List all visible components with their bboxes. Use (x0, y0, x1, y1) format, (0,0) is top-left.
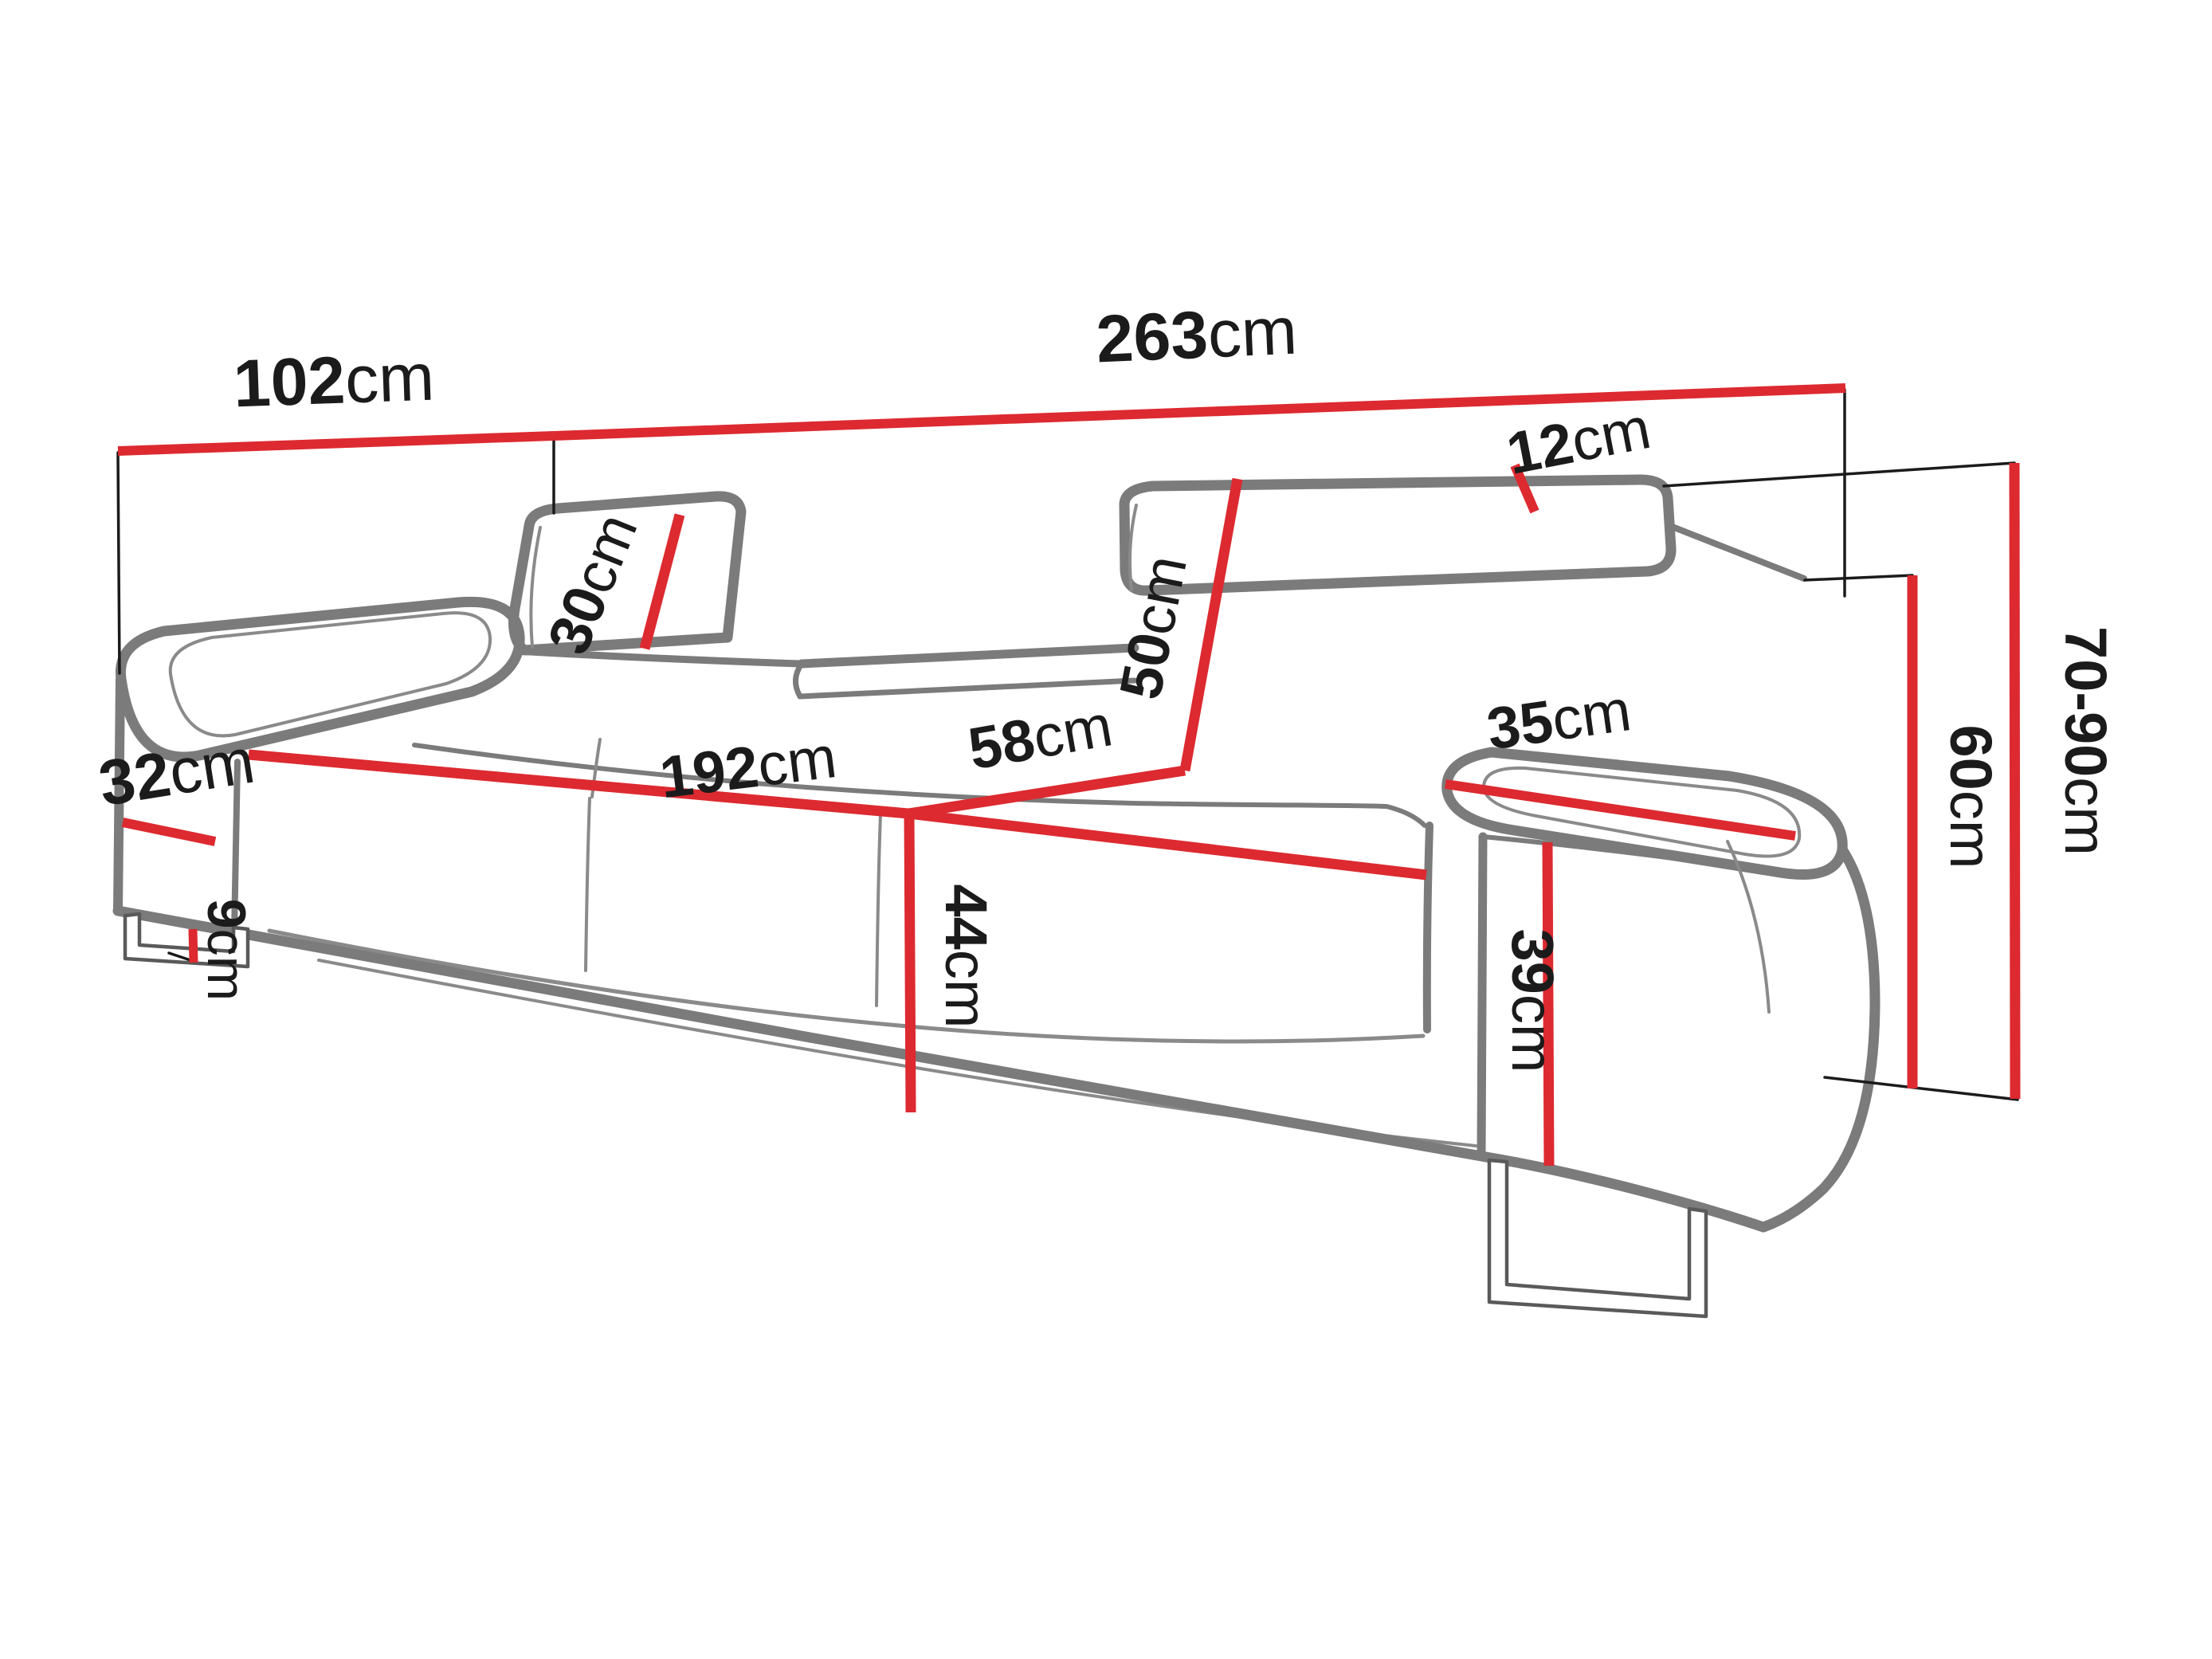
seat-front-divider-right (877, 814, 880, 1006)
dim-label-total-height: 70-90cm (2053, 626, 2119, 856)
backrest-top-left (516, 651, 800, 664)
backrest-top-right (1670, 526, 1804, 578)
dim-label-armrest-height: 60cm (1938, 725, 2004, 869)
dim-line-102 (118, 436, 554, 451)
ref-armrest-height (1805, 575, 1912, 580)
ref-top-height (1664, 463, 2014, 486)
dim-label-width-overall: 263cm (1095, 293, 1299, 377)
sofa-dimension-diagram: 102cm 263cm 30cm 50cm 12cm 32cm 192cm 58… (0, 0, 2212, 1659)
dim-line-30 (645, 515, 680, 649)
seat-cushion-bottom-seam (269, 931, 1423, 1041)
ref-left-drop (118, 453, 120, 673)
headrest-support-bar-cap (795, 664, 802, 696)
right-armrest-front-top-edge (1483, 837, 1775, 872)
dim-line-seat-to-arm (908, 814, 1426, 875)
headrest-support-bar-top (802, 648, 1135, 664)
seat-front-divider-left (586, 798, 590, 971)
dim-line-50 (1185, 479, 1237, 771)
diagram-canvas: 102cm 263cm 30cm 50cm 12cm 32cm 192cm 58… (0, 0, 2212, 1659)
dim-label-seat-height: 44cm (933, 884, 999, 1029)
dim-line-70-90 (2014, 463, 2015, 1099)
right-headrest (1124, 480, 1671, 590)
right-armrest-front-left-edge (1481, 837, 1483, 1153)
dim-label-depth-overall: 102cm (232, 339, 435, 422)
dim-line-9-tick (193, 929, 194, 963)
dim-label-armrest-width-top: 35cm (1483, 677, 1635, 762)
left-armrest-top-seam (171, 613, 490, 735)
dim-label-headrest-thickness: 12cm (1501, 394, 1655, 487)
headrest-support-bar-bottom (800, 680, 1135, 696)
ref-floor (1825, 1077, 2018, 1100)
dim-line-263 (554, 388, 1845, 436)
right-armrest-inner-edge (1427, 826, 1430, 1030)
dim-label-armrest-front-height: 39cm (1500, 929, 1566, 1073)
dim-label-seat-width: 192cm (657, 724, 841, 810)
right-armrest-outer-edge (1763, 849, 1875, 1227)
dim-label-leg-height: 9cm (196, 899, 257, 1001)
dim-label-seat-depth: 58cm (963, 692, 1117, 782)
dim-line-58 (908, 771, 1185, 814)
dim-line-32 (123, 822, 215, 841)
dim-line-44 (909, 814, 911, 1112)
